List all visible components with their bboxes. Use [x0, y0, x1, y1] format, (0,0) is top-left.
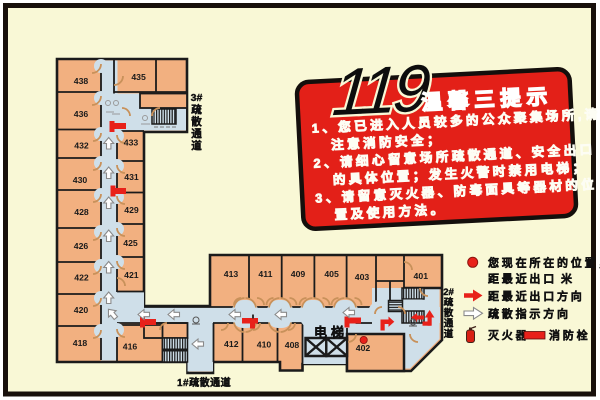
svg-text:438: 438 — [74, 76, 89, 86]
svg-text:通: 通 — [191, 128, 202, 140]
svg-text:431: 431 — [124, 172, 139, 182]
svg-text:435: 435 — [131, 72, 146, 82]
svg-text:道: 道 — [191, 139, 202, 152]
svg-text:3#: 3# — [191, 92, 203, 104]
svg-text:416: 416 — [123, 342, 138, 352]
svg-text:411: 411 — [258, 269, 272, 279]
svg-text:灭火器: 灭火器 — [487, 329, 529, 342]
svg-text:402: 402 — [356, 343, 371, 353]
svg-text:疏散指示方向: 疏散指示方向 — [488, 307, 571, 321]
svg-text:409: 409 — [291, 269, 306, 279]
svg-text:消防栓: 消防栓 — [549, 328, 590, 342]
svg-text:道: 道 — [444, 328, 454, 340]
svg-text:426: 426 — [74, 241, 89, 251]
svg-text:401: 401 — [414, 271, 429, 281]
svg-text:疏: 疏 — [191, 103, 202, 116]
svg-text:412: 412 — [224, 339, 239, 349]
svg-text:413: 413 — [224, 269, 239, 279]
svg-text:408: 408 — [285, 340, 300, 350]
svg-text:距最近出口: 距最近出口 — [488, 272, 557, 286]
svg-text:距最近出口方向: 距最近出口方向 — [488, 289, 585, 303]
svg-text:通: 通 — [444, 319, 454, 330]
svg-text:2#: 2# — [443, 287, 454, 298]
svg-text:425: 425 — [123, 238, 138, 248]
svg-text:432: 432 — [74, 141, 89, 151]
svg-text:您现在所在的位置，: 您现在所在的位置， — [488, 256, 600, 270]
svg-text:430: 430 — [73, 175, 88, 185]
svg-text:疏: 疏 — [444, 297, 454, 309]
svg-text:429: 429 — [124, 205, 139, 215]
svg-text:410: 410 — [257, 340, 272, 350]
svg-text:电梯: 电梯 — [314, 325, 348, 340]
svg-text:403: 403 — [355, 272, 370, 282]
svg-text:405: 405 — [324, 269, 339, 279]
svg-text:散: 散 — [191, 115, 202, 128]
svg-text:436: 436 — [74, 109, 89, 119]
svg-text:433: 433 — [124, 138, 139, 148]
svg-text:1#疏散通道: 1#疏散通道 — [177, 376, 231, 389]
svg-text:428: 428 — [74, 207, 89, 217]
svg-text:418: 418 — [73, 338, 88, 348]
svg-text:散: 散 — [444, 307, 454, 319]
svg-text:420: 420 — [74, 305, 89, 315]
svg-text:422: 422 — [74, 273, 89, 283]
svg-text:米: 米 — [560, 272, 575, 286]
svg-text:421: 421 — [124, 270, 139, 280]
